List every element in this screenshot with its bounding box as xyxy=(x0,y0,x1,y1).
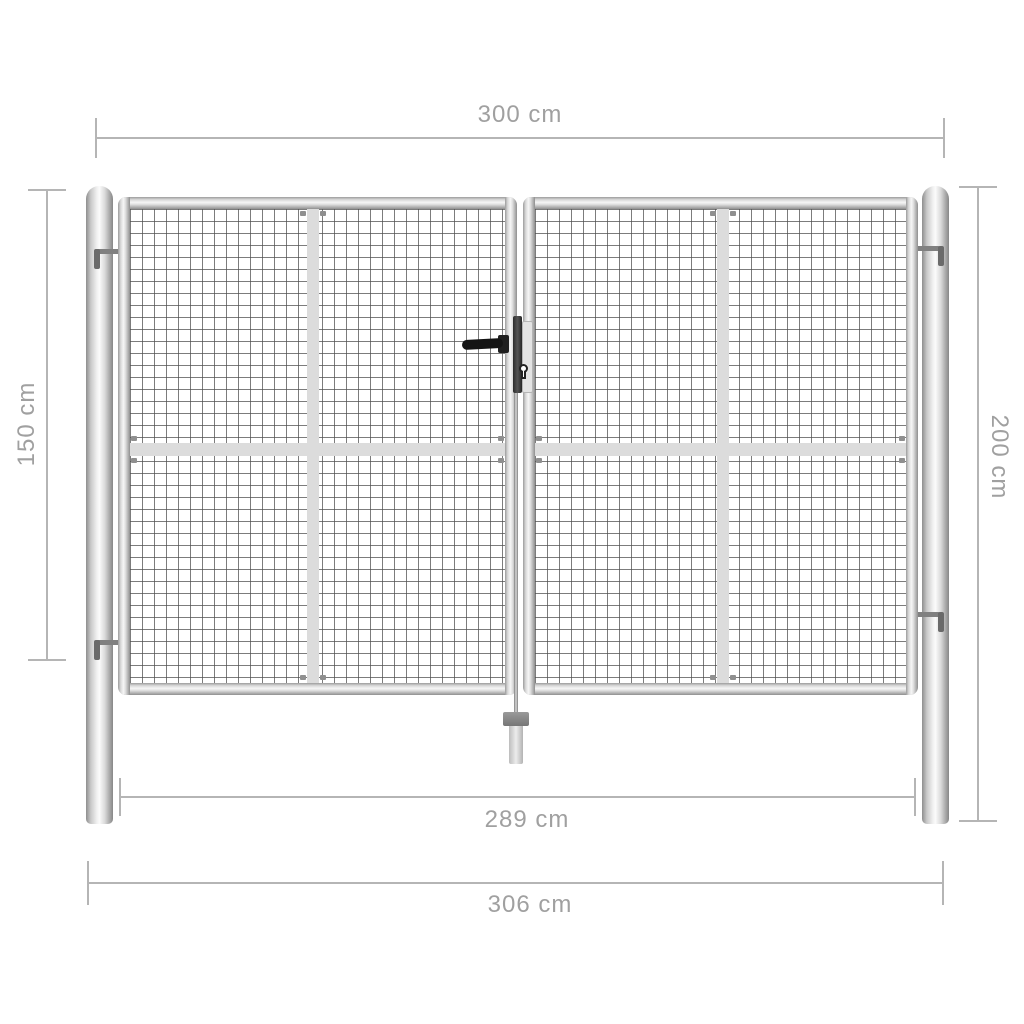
dimension-line xyxy=(96,137,944,139)
brace-clip xyxy=(320,675,326,680)
dimension-tick xyxy=(119,778,121,816)
frame-tube-left xyxy=(523,197,535,695)
brace-clip xyxy=(710,675,716,680)
rail-clip xyxy=(498,436,504,441)
dimension-tick xyxy=(959,186,997,188)
horizontal-rail-left xyxy=(130,443,505,456)
brace-clip xyxy=(300,675,306,680)
dimension-tick xyxy=(943,118,945,158)
hinge-hook xyxy=(94,640,100,660)
rail-clip xyxy=(498,458,504,463)
gate-door-left xyxy=(118,197,517,695)
hinge-arm xyxy=(916,612,940,617)
brace-clip xyxy=(300,211,306,216)
dimension-top-width-label: 300 cm xyxy=(450,101,590,129)
dimension-tick xyxy=(914,778,916,816)
rail-clip xyxy=(899,436,905,441)
drop-rod-guide-block xyxy=(503,712,529,726)
frame-tube-top xyxy=(118,197,517,209)
lock-plate xyxy=(513,316,522,393)
brace-clip xyxy=(320,211,326,216)
frame-tube-top xyxy=(523,197,918,209)
drop-rod xyxy=(514,382,518,714)
hinge-hook xyxy=(938,612,944,632)
hinge-hook xyxy=(94,249,100,269)
product-dimension-diagram: 300 cm 150 cm 200 cm 289 cm 306 cm xyxy=(0,0,1024,1024)
frame-tube-right xyxy=(906,197,918,695)
dimension-tick xyxy=(28,659,66,661)
hinge-hook xyxy=(938,246,944,266)
dimension-line xyxy=(88,882,943,884)
rail-clip xyxy=(899,458,905,463)
drop-rod-ground-pin xyxy=(509,726,523,764)
keyhole-icon xyxy=(521,371,526,379)
rail-clip xyxy=(131,436,137,441)
gate-post-left xyxy=(86,186,113,824)
frame-tube-left xyxy=(118,197,130,695)
dimension-tick xyxy=(959,820,997,822)
dimension-tick xyxy=(28,189,66,191)
gate-door-right xyxy=(523,197,918,695)
dimension-outer-width-label: 306 cm xyxy=(460,891,600,919)
gate-handle xyxy=(462,338,503,350)
rail-clip xyxy=(536,458,542,463)
dimension-tick xyxy=(87,861,89,905)
gate-post-right xyxy=(922,186,949,824)
rail-clip xyxy=(131,458,137,463)
dimension-right-height-label: 200 cm xyxy=(985,387,1013,527)
hinge-arm xyxy=(916,246,940,251)
dimension-tick xyxy=(942,861,944,905)
horizontal-rail-right xyxy=(535,443,906,456)
latch-plate xyxy=(522,321,533,393)
rail-clip xyxy=(536,436,542,441)
dimension-inner-width-label: 289 cm xyxy=(457,806,597,834)
brace-clip xyxy=(710,211,716,216)
brace-clip xyxy=(730,675,736,680)
dimension-line xyxy=(120,796,915,798)
dimension-tick xyxy=(95,118,97,158)
frame-tube-bottom xyxy=(523,683,918,695)
dimension-line xyxy=(977,187,979,822)
frame-tube-bottom xyxy=(118,683,517,695)
dimension-left-height-label: 150 cm xyxy=(13,354,41,494)
dimension-line xyxy=(46,190,48,660)
brace-clip xyxy=(730,211,736,216)
